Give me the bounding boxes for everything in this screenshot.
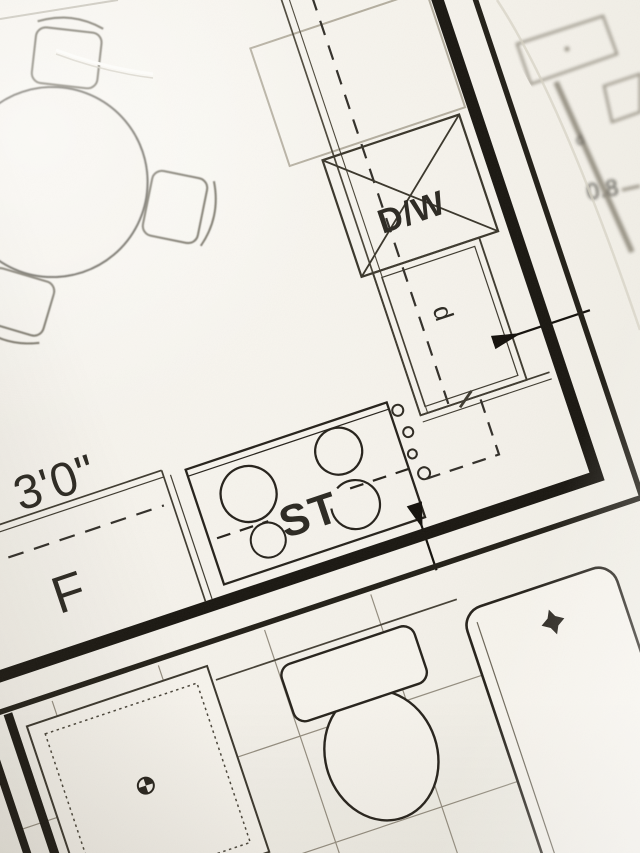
floor-plan-drawing: d 0.8 — [0, 0, 640, 853]
floor-plan-photo: d 0.8 — [0, 0, 640, 853]
paper-grain — [0, 0, 640, 853]
